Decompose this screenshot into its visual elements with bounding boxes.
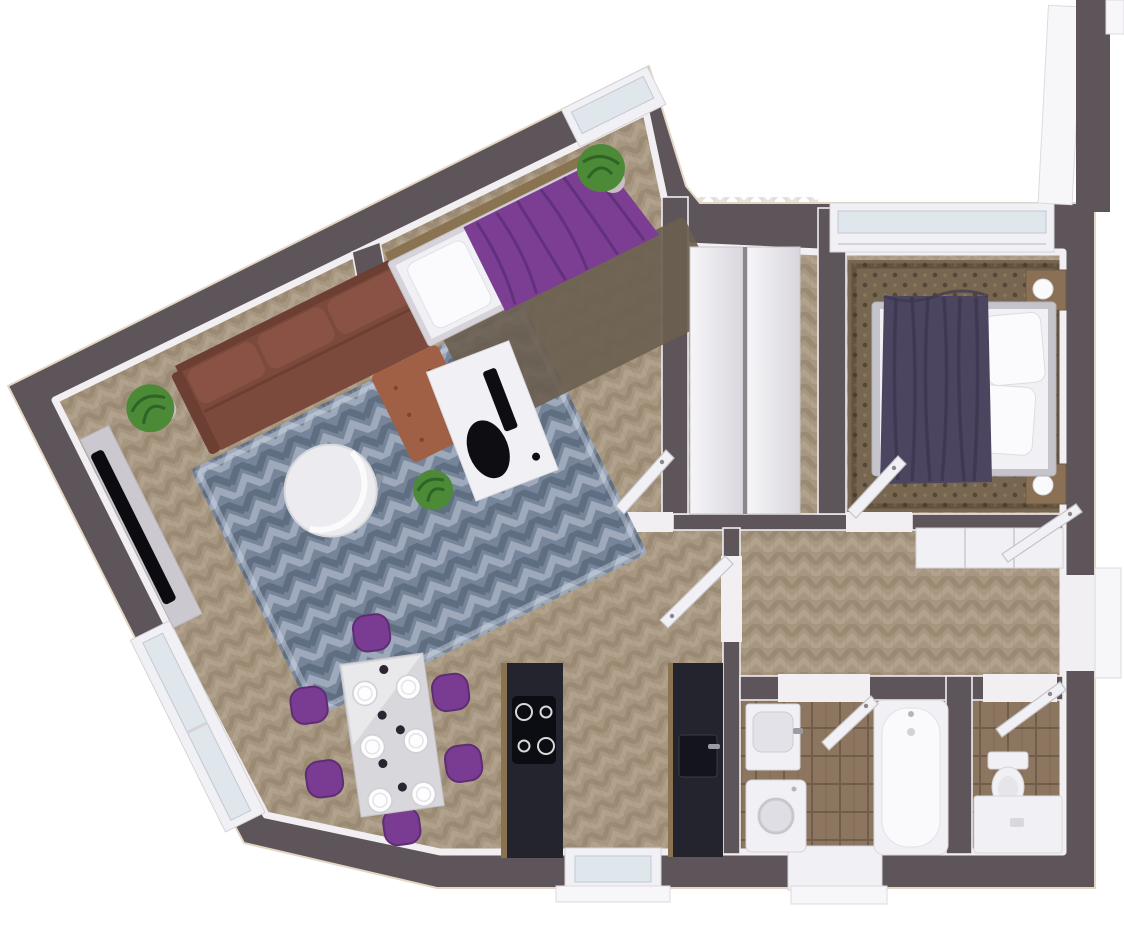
shower-drain [1010,818,1024,827]
bathtub-drain [907,728,915,736]
balcony-outer-sill [1095,568,1121,678]
kitchen-window [556,848,670,902]
wall-kitchen-hall-a [723,528,740,558]
bathtub-faucet [908,711,914,717]
building-structure-top-right [1038,0,1124,212]
corridor-wardrobes [690,247,800,514]
balcony-doorway [1063,575,1097,671]
dining-chair [351,613,392,654]
dining-chair [430,672,471,713]
structure-white-sliver [1106,0,1124,34]
structure-wall-strip [1076,0,1110,212]
master-pillow-1 [983,312,1046,387]
entrance-step [791,886,887,904]
washing-machine-door [759,799,793,833]
wardrobe-left [690,247,743,514]
floor-plan-render: 3D top-view render of an apartment floor… [0,0,1124,937]
master-window [830,203,1054,252]
sphere-lamp-south [1033,475,1053,495]
wall-kitchen-hall-b [723,640,740,854]
wall-master-west [818,208,846,514]
wall-south-corridor-b [673,514,848,530]
dining-chair [304,758,345,799]
shower-tray [974,796,1062,853]
vanity-faucet [793,728,803,734]
wall-bath-north-a [740,676,780,700]
dining-chair [443,743,484,784]
wardrobe-right [747,247,800,514]
sphere-lamp-north [1033,279,1053,299]
threshold-bathroom [778,674,870,702]
kitchen-sink [679,735,717,777]
bathtub [874,700,948,855]
structure-door-panel [1038,5,1082,205]
dining-chair [289,685,330,726]
floor-plan-svg [0,0,1124,937]
entrance-bath-window [788,846,887,904]
wall-bath-shower [946,676,972,854]
kitchen-faucet [708,744,720,749]
